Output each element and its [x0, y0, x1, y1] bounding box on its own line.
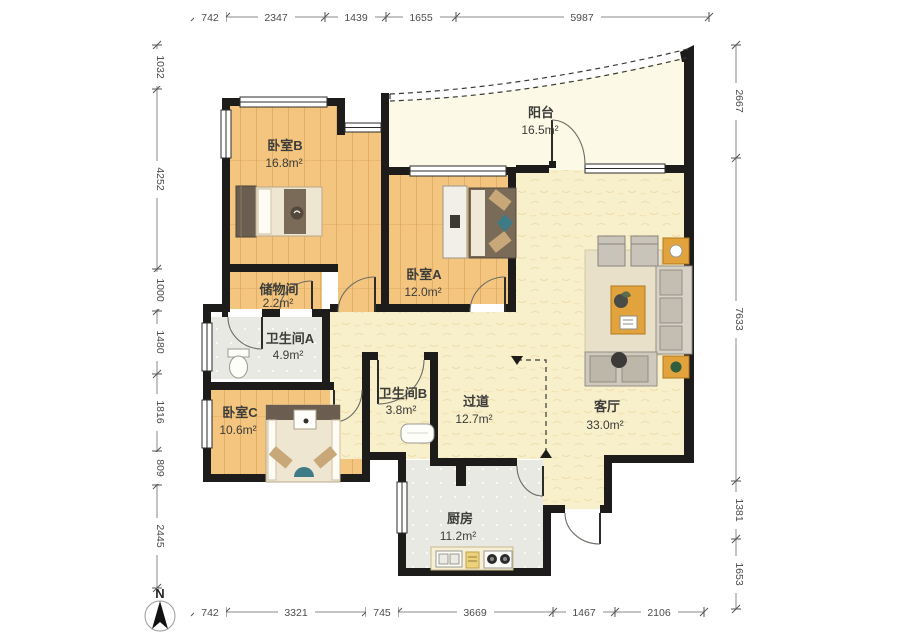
window	[202, 323, 212, 371]
bed-b-icon	[236, 186, 322, 237]
svg-text:5987: 5987	[570, 12, 594, 24]
svg-text:储物间: 储物间	[258, 282, 298, 297]
dimension-line-bottom: 742 3321 745 3669 1467 2106	[191, 605, 708, 619]
svg-text:4.9m²: 4.9m²	[273, 348, 304, 362]
svg-text:卧室A: 卧室A	[406, 267, 442, 282]
dimension-line-right: 2667 7633 1381 1653	[729, 41, 745, 613]
room-bedroom-b-floor	[230, 106, 345, 264]
toilet-icon	[228, 349, 249, 378]
svg-text:745: 745	[373, 607, 391, 619]
floor-plan-canvas: 卧室B16.8m² 阳台16.5m² 储物间2.2m² 卧室A12.0m² 卫生…	[0, 0, 900, 640]
svg-text:阳台: 阳台	[528, 105, 554, 120]
room-bedroom-b-floor2	[345, 130, 381, 264]
svg-text:16.5m²: 16.5m²	[521, 123, 558, 137]
svg-text:1000: 1000	[154, 278, 166, 302]
svg-text:3.8m²: 3.8m²	[386, 403, 417, 417]
north-arrow-icon: N	[145, 586, 175, 631]
svg-text:7633: 7633	[733, 307, 745, 331]
svg-text:2.2m²: 2.2m²	[263, 296, 294, 310]
bed-c-icon	[266, 405, 340, 482]
window	[397, 482, 407, 533]
svg-text:11.2m²: 11.2m²	[440, 529, 476, 543]
svg-text:1480: 1480	[154, 330, 166, 354]
svg-text:16.8m²: 16.8m²	[265, 156, 302, 170]
svg-text:1439: 1439	[344, 12, 368, 24]
floor-plan-page: 卧室B16.8m² 阳台16.5m² 储物间2.2m² 卧室A12.0m² 卫生…	[0, 0, 900, 640]
svg-text:742: 742	[201, 12, 219, 24]
svg-text:2106: 2106	[647, 607, 671, 619]
svg-text:33.0m²: 33.0m²	[586, 418, 623, 432]
svg-text:1381: 1381	[733, 498, 745, 522]
svg-text:742: 742	[201, 607, 219, 619]
svg-text:卫生间A: 卫生间A	[266, 331, 315, 346]
window	[221, 110, 231, 158]
kitchen-counter-icon	[431, 547, 513, 570]
svg-text:4252: 4252	[154, 167, 166, 191]
window	[410, 166, 506, 176]
svg-text:1816: 1816	[154, 400, 166, 424]
svg-text:厨房: 厨房	[447, 511, 473, 526]
svg-text:12.0m²: 12.0m²	[404, 285, 441, 299]
svg-text:12.7m²: 12.7m²	[455, 412, 492, 426]
svg-text:1653: 1653	[733, 562, 745, 586]
svg-text:1032: 1032	[154, 55, 166, 79]
svg-text:1655: 1655	[409, 12, 433, 24]
window	[202, 400, 212, 448]
window	[240, 97, 327, 107]
svg-text:3669: 3669	[463, 607, 487, 619]
window	[345, 123, 381, 132]
room-entry-floor	[543, 459, 604, 509]
sofa-set-icon	[585, 236, 692, 386]
svg-text:809: 809	[154, 459, 166, 477]
svg-text:3321: 3321	[284, 607, 308, 619]
svg-text:10.6m²: 10.6m²	[219, 423, 256, 437]
bed-a-icon	[443, 186, 516, 258]
svg-text:N: N	[155, 586, 164, 601]
svg-text:2347: 2347	[264, 12, 288, 24]
svg-text:卫生间B: 卫生间B	[379, 386, 427, 401]
svg-text:过道: 过道	[463, 394, 489, 409]
svg-text:卧室C: 卧室C	[222, 405, 258, 420]
svg-text:客厅: 客厅	[594, 399, 620, 414]
svg-text:卧室B: 卧室B	[267, 138, 302, 153]
room-label-storage: 储物间2.2m²	[258, 282, 298, 310]
svg-text:2667: 2667	[733, 89, 745, 113]
dimension-line-top: 742 2347 1439 1655 5987	[191, 10, 713, 24]
svg-text:2445: 2445	[154, 524, 166, 548]
door-arc	[565, 513, 600, 544]
svg-text:1467: 1467	[572, 607, 596, 619]
bathtub-icon	[401, 424, 434, 443]
dimension-line-left: 1032 4252 1000 1480 1816 809 2445	[150, 41, 166, 592]
window	[585, 164, 665, 173]
room-bathroom-a-floor	[211, 317, 322, 379]
